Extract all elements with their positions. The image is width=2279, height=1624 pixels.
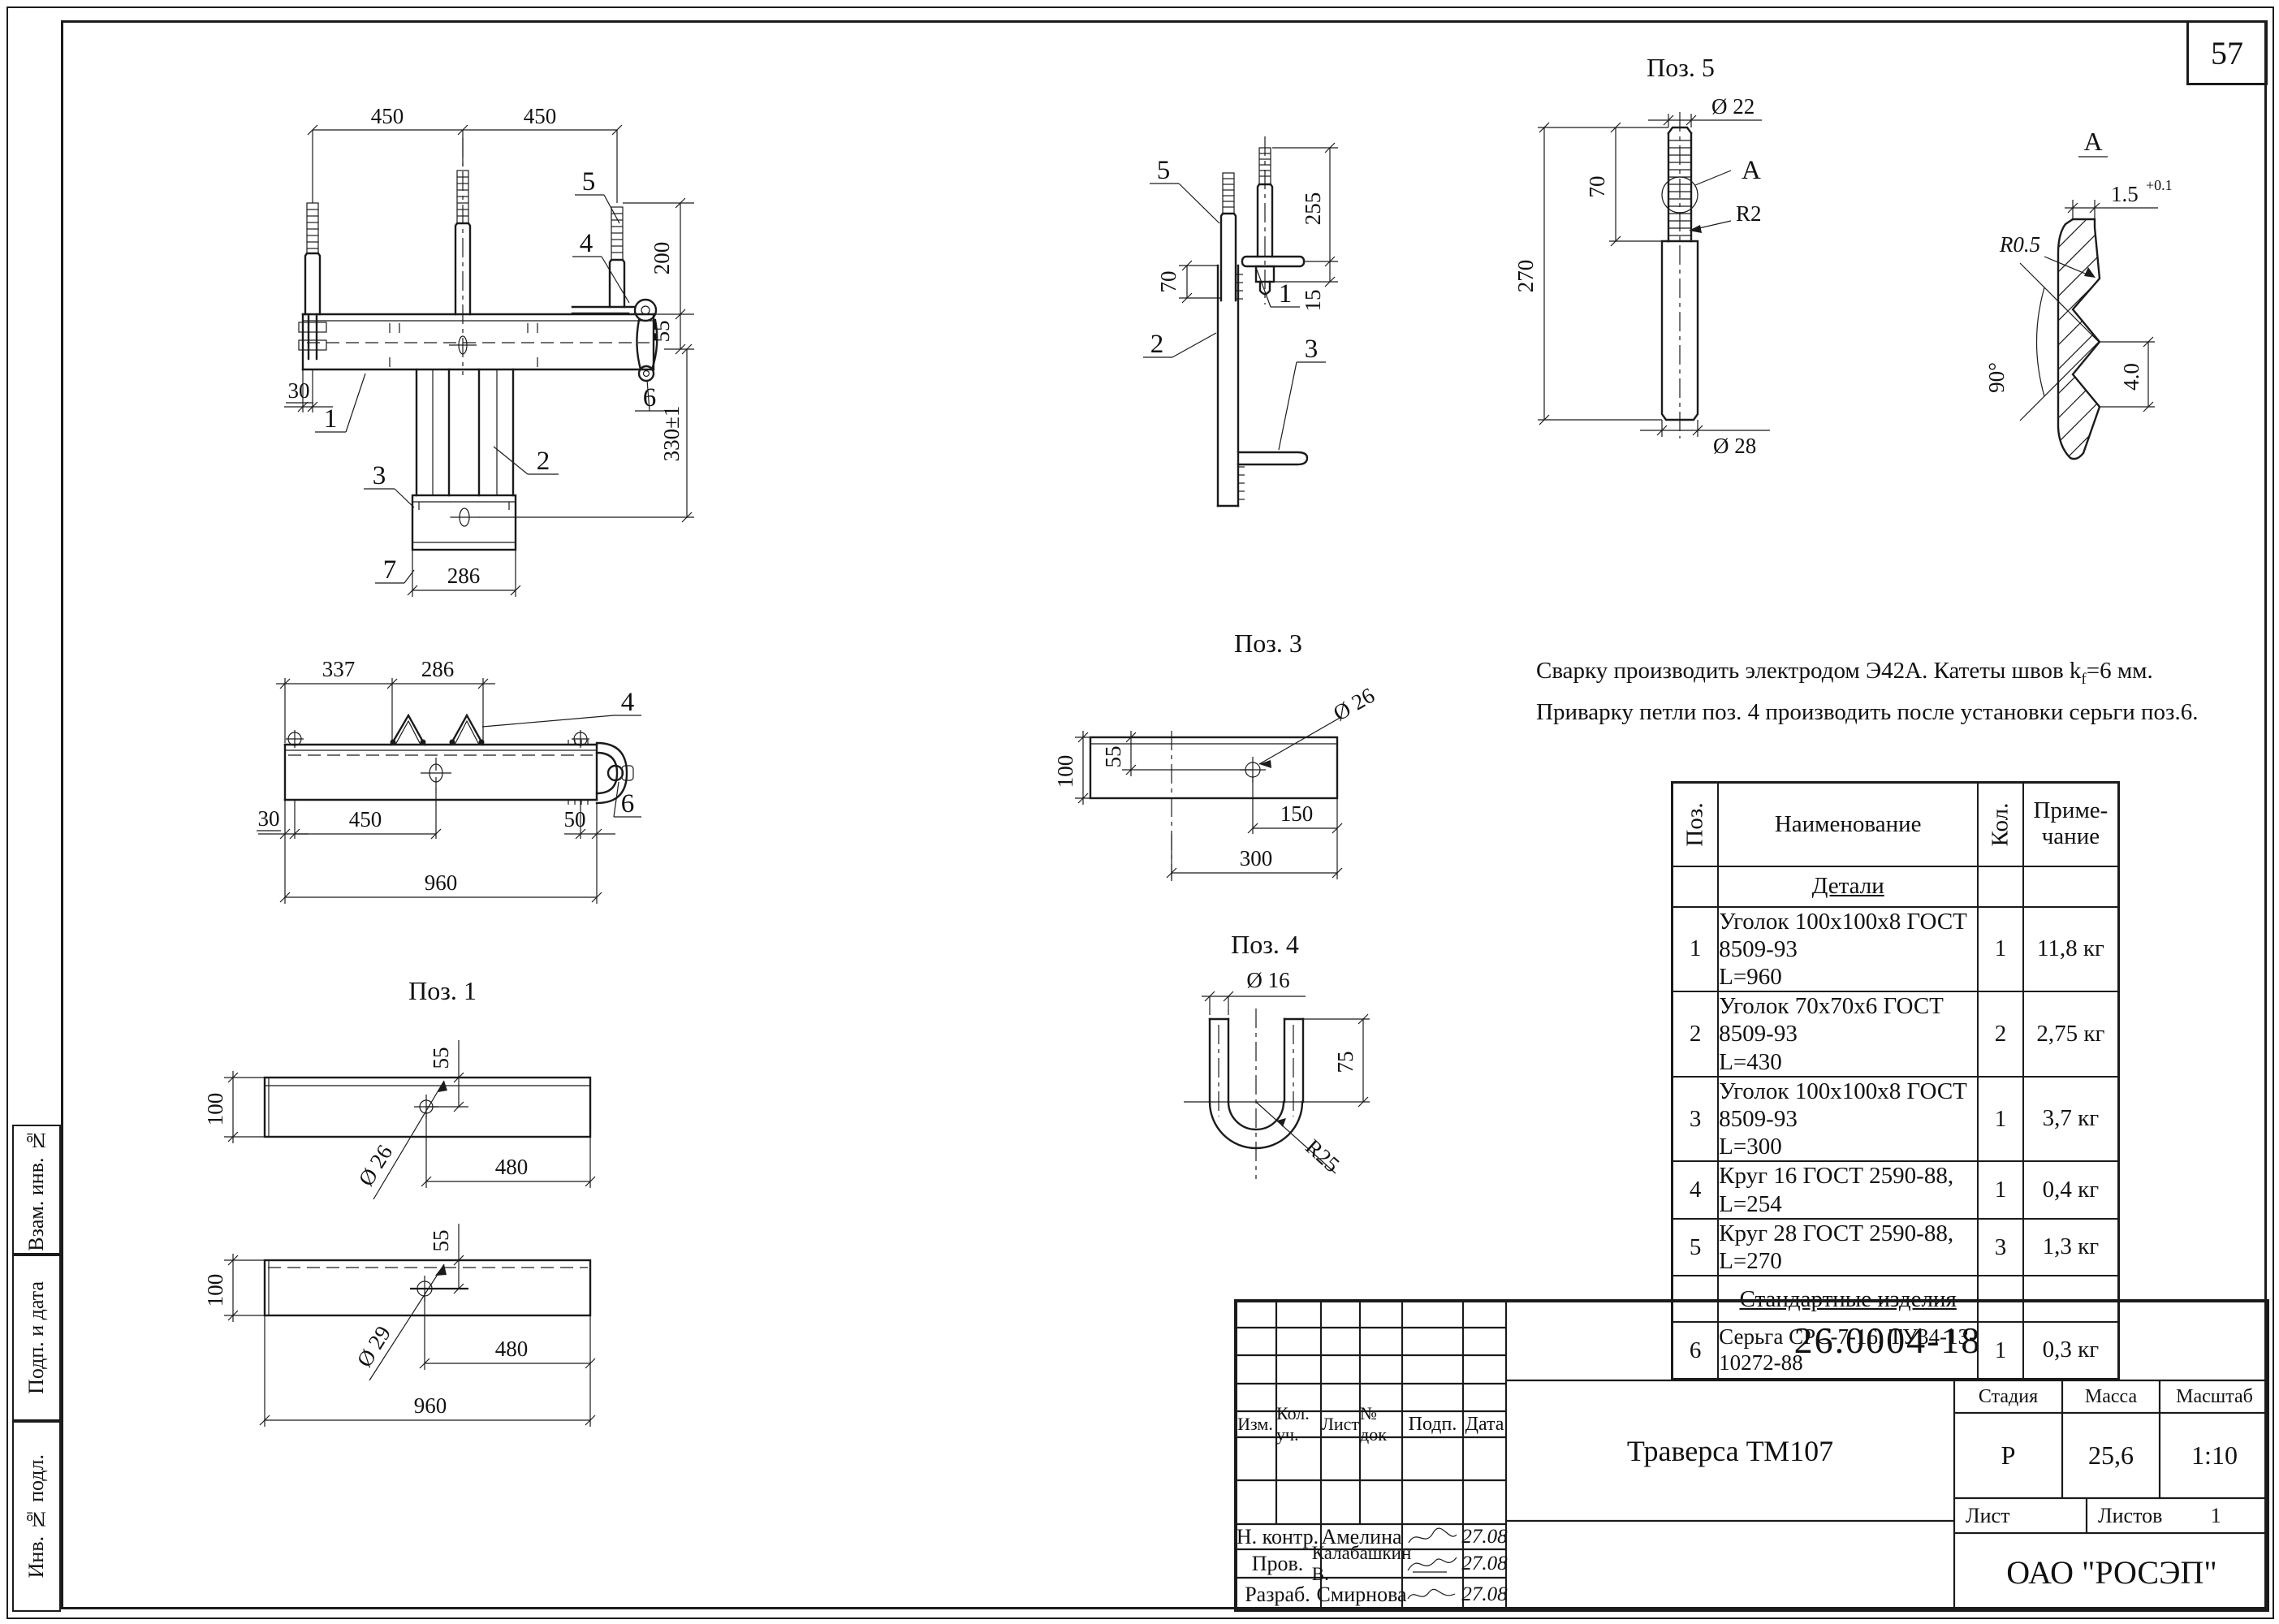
tb-sig2-date: 27.08 [1463,1549,1506,1578]
pos5-detail-a-ref: А [1742,156,1761,185]
pos1-bar1-dia-arrow [438,1081,447,1092]
pos5-texts: Ø 22 А R2 70 270 Ø 28 [1513,94,1762,458]
row3-name: Уголок 100х100х8 ГОСТ 8509-93 L=300 [1718,1077,1978,1162]
tb-scale-value: 1:10 [2160,1413,2269,1498]
col-header-pos-label: Поз. [1682,802,1709,846]
note-line1-pre: Сварку производить электродом Э42А. Кате… [1536,658,2081,684]
detail-a-title: А [2083,127,2102,156]
pos1-b2-55: 55 [429,1230,453,1252]
pos1-texts: 100 55 Ø 26 480 100 55 Ø 29 480 960 [203,1047,528,1419]
pos3-dim-100: 100 [1053,755,1077,788]
note-line-1: Сварку производить электродом Э42А. Кате… [1536,654,2267,696]
detail-a-hatch [2038,179,2127,512]
tb-sig1-date: 27.08 [1463,1524,1506,1549]
plan-label-6: 6 [621,789,635,818]
tb-sheet-label: Лист [1954,1498,2087,1533]
pos3-title: Поз. 3 [1234,628,1302,658]
pos1-b2-100: 100 [203,1274,227,1307]
note-line-2: Приварку петли поз. 4 производить после … [1536,696,2267,729]
side-label-5: 5 [1157,156,1171,185]
front-texts: 450 450 200 55 330±1 30 286 5 4 6 1 2 3 … [288,104,684,588]
title-block: Изм. Кол. уч. Лист № док Подп. Дата Н. к… [1234,1299,2269,1612]
detail-a-tol: +0.1 [2146,177,2173,193]
row2-name: Уголок 70х70х6 ГОСТ 8509-93 L=430 [1718,991,1978,1077]
col-header-name: Наименование [1718,783,1978,866]
tb-product-name: Траверса ТМ107 [1506,1380,1954,1521]
front-label-3: 3 [373,461,386,490]
parts-header-row: Поз. Наименование Кол. Приме- чание [1673,783,2119,866]
col-header-qty-label: Кол. [1988,802,2014,846]
row5-name: Круг 28 ГОСТ 2590-88, L=270 [1718,1219,1978,1276]
plan-dim-450: 450 [349,807,382,831]
tb-sig1-role: Н. контр. [1234,1524,1321,1549]
signature-icon [1405,1527,1461,1548]
tb-sig2-role: Пров. [1234,1549,1321,1578]
pos3-dia-arrow [1259,760,1271,768]
plan-dim-960: 960 [425,870,458,895]
row1-name: Уголок 100х100х8 ГОСТ 8509-93 L=960 [1718,907,1978,992]
front-bottom-clamp [412,495,516,550]
view-assembly-side: 255 15 70 5 2 1 3 [1129,97,1396,621]
side-label-3: 3 [1305,335,1319,364]
pos1-b2-480: 480 [495,1337,529,1361]
pos4-texts: Ø 16 75 R25 [1246,968,1357,1177]
pos4-centerlines [1219,1009,1293,1179]
row4-pos: 4 [1673,1161,1719,1218]
front-dim-200: 200 [650,242,674,275]
tb-scale-label: Масштаб [2160,1380,2269,1413]
tb-col-data: Дата [1463,1411,1506,1437]
front-dim-286: 286 [447,564,481,588]
view-pos4: Поз. 4 Ø 16 75 R25 [1169,934,1494,1250]
front-dim-450a: 450 [371,104,404,128]
pos3-dim-150: 150 [1280,801,1314,826]
view-plan: 337 286 30 450 50 960 4 6 [252,662,641,934]
tb-col-list: Лист [1321,1411,1360,1437]
table-row: 1 Уголок 100х100х8 ГОСТ 8509-93 L=960 1 … [1673,907,2119,992]
side-leaders [1143,184,1326,450]
plan-label-4: 4 [621,688,635,717]
plan-weld-ticks [568,740,588,805]
pos3-body [1090,737,1337,798]
side-stud-threads [1223,148,1271,214]
pos3-dia26: Ø 26 [1329,683,1379,726]
tb-sig3-signature [1402,1578,1463,1612]
detail-a-r05: R0.5 [1999,232,2040,257]
front-dim-450b: 450 [524,104,557,128]
pos5-r2: R2 [1736,201,1762,226]
row3-note: 3,7 кг [2023,1077,2119,1162]
tb-mass-value: 25,6 [2062,1413,2160,1498]
pos1-bar1-dims [224,1040,595,1199]
row1-qty: 1 [1978,907,2023,992]
front-weld-ticks [390,323,537,510]
tb-col-kol: Кол. уч. [1276,1411,1321,1437]
plan-beam [285,745,597,800]
table-row: 5 Круг 28 ГОСТ 2590-88, L=270 3 1,3 кг [1673,1219,2119,1276]
tb-sig2-signature [1402,1549,1463,1578]
pos5-dia22: Ø 22 [1711,94,1755,119]
empty-cell [2023,866,2119,907]
front-label-7: 7 [383,555,397,585]
pos5-dims [1538,114,1770,437]
pos5-dia28: Ø 28 [1713,434,1756,458]
pos5-dim-270: 270 [1513,260,1538,293]
pos4-dim-75: 75 [1333,1052,1357,1073]
side-weld-ticks [1236,274,1245,499]
table-row: 3 Уголок 100х100х8 ГОСТ 8509-93 L=300 1 … [1673,1077,2119,1162]
tb-stage-label: Стадия [1954,1380,2062,1413]
front-label-4: 4 [580,229,593,258]
table-row: 4 Круг 16 ГОСТ 2590-88, L=254 1 0,4 кг [1673,1161,2119,1218]
margin-label-inv: Инв. № подл. [24,1454,49,1578]
pos1-b2-960: 960 [414,1393,447,1418]
tb-sig3-role: Разраб. [1234,1578,1321,1612]
pos1-b1-100: 100 [203,1093,227,1126]
front-dim-55: 55 [650,321,674,343]
front-dim-lines [284,125,694,597]
pos4-r25: R25 [1301,1134,1345,1177]
tb-sheets: Листов 1 [2087,1498,2269,1533]
tb-sig3-name: Смирнова [1321,1578,1402,1612]
pos1-b1-dia26: Ø 26 [354,1141,398,1190]
pos5-title: Поз. 5 [1647,53,1715,82]
plan-texts: 337 286 30 450 50 960 4 6 [258,657,635,895]
table-row: 2 Уголок 70х70х6 ГОСТ 8509-93 L=430 2 2,… [1673,991,2119,1077]
tb-sheets-value: 1 [2162,1504,2269,1528]
row1-pos: 1 [1673,907,1719,992]
plan-dim-50: 50 [564,807,586,831]
pos1-b1-480: 480 [495,1155,529,1179]
section-row-details: Детали [1673,866,2119,907]
pos4-title: Поз. 4 [1231,930,1299,959]
front-label-1: 1 [324,404,338,434]
row3-pos: 3 [1673,1077,1719,1162]
row5-pos: 5 [1673,1219,1719,1276]
front-uprights [417,369,513,495]
pos3-dim-300: 300 [1240,846,1273,870]
row2-pos: 2 [1673,991,1719,1077]
side-geometry [1218,184,1307,506]
pos3-dim-55: 55 [1101,746,1125,768]
empty-cell [1978,866,2023,907]
row4-name: Круг 16 ГОСТ 2590-88, L=254 [1718,1161,1978,1218]
front-label-5: 5 [582,167,596,197]
row4-qty: 1 [1978,1161,2023,1218]
front-stud-threads [307,171,623,260]
pos4-dia16: Ø 16 [1246,968,1289,992]
margin-label-vzam: Взам. инв. № [24,1129,49,1251]
tb-sig3-date: 27.08 [1463,1578,1506,1612]
margin-cell-inv: Инв. № подл. [12,1421,61,1612]
front-stud-bodies [305,223,624,359]
row5-note: 1,3 кг [2023,1219,2119,1276]
detail-a-dim-15: 1.5 [2111,182,2139,206]
side-label-1: 1 [1279,279,1293,309]
plan-dim-337: 337 [322,657,356,681]
tb-company: ОАО "РОСЭП" [1954,1533,2269,1612]
pos1-bar2-dims [224,1224,595,1427]
row3-qty: 1 [1978,1077,2023,1162]
front-dim-30: 30 [288,378,310,403]
signature-icon [1405,1583,1461,1607]
detail-a-dim-40: 4.0 [2119,363,2143,391]
front-geometry [299,138,657,550]
row5-qty: 3 [1978,1219,2023,1276]
tb-col-ndok: № док [1360,1411,1402,1437]
plan-dim-286: 286 [421,657,455,681]
tb-doc-number: 26.0004-18 [1506,1299,2269,1380]
side-dim-70: 70 [1156,271,1181,293]
pos1-b2-dia29: Ø 29 [352,1322,396,1371]
plan-center-hole [421,758,451,790]
view-pos1: Поз. 1 [211,970,617,1458]
pos3-texts: 100 55 Ø 26 150 300 [1053,683,1379,870]
note-line1-post: =6 мм. [2087,658,2153,684]
detail-a-angle: 90° [1984,362,2009,393]
front-beam [303,314,654,369]
front-label-2: 2 [537,447,550,476]
margin-cell-podp: Подп. и дата [12,1255,61,1421]
parts-table: Поз. Наименование Кол. Приме- чание Дета… [1671,781,2120,1380]
col-header-qty: Кол. [1978,783,2023,866]
view-pos5: Поз. 5 Ø 22 А R2 70 270 [1518,49,1884,585]
view-assembly-front: 450 450 200 55 330±1 30 286 5 4 6 1 2 3 … [284,89,1015,617]
margin-cell-vzam: Взам. инв. № [12,1125,61,1255]
row1-note: 11,8 кг [2023,907,2119,992]
tb-stage-value: Р [1954,1413,2062,1498]
margin-label-podp: Подп. и дата [24,1281,49,1394]
front-dim-330: 330±1 [659,406,684,462]
tb-col-podp: Подп. [1402,1411,1463,1437]
empty-cell [1673,866,1719,907]
pos1-bar2-dia-arrow [435,1264,447,1276]
side-dim-15: 15 [1301,290,1325,312]
tb-col-izm: Изм. [1234,1411,1276,1437]
side-dim-255: 255 [1301,192,1325,226]
tb-sig2-name: Калабашкин В. [1321,1549,1402,1578]
col-header-pos: Поз. [1673,783,1719,866]
page-number: 57 [2211,34,2243,72]
drawing-sheet: 57 Взам. инв. № Подп. и дата Инв. № подл… [0,0,2279,1624]
tb-mass-label: Масса [2062,1380,2160,1413]
detail-a-texts: 1.5 +0.1 R0.5 90° 4.0 [1984,177,2173,393]
section-details: Детали [1718,866,1978,907]
weld-notes: Сварку производить электродом Э42А. Кате… [1536,654,2267,729]
row2-qty: 2 [1978,991,2023,1077]
signature-icon [1405,1553,1461,1575]
pos5-dim-70: 70 [1585,176,1609,198]
pos1-title: Поз. 1 [408,976,477,1005]
plan-dim-30: 30 [258,806,280,831]
page-number-box: 57 [2186,20,2268,85]
pos1-b1-55: 55 [429,1047,453,1069]
front-label-6: 6 [643,383,657,412]
row4-note: 0,4 кг [2023,1161,2119,1218]
view-detail-a: А 1.5 +0.1 R0.5 90° 4.0 [1949,106,2265,495]
side-label-2: 2 [1150,330,1164,359]
col-header-note: Приме- чание [2023,783,2119,866]
tb-sheets-label: Листов [2098,1504,2162,1528]
view-pos3: Поз. 3 100 55 Ø 26 150 300 [1055,629,1405,914]
plan-loops [391,715,483,745]
row2-note: 2,75 кг [2023,991,2119,1077]
